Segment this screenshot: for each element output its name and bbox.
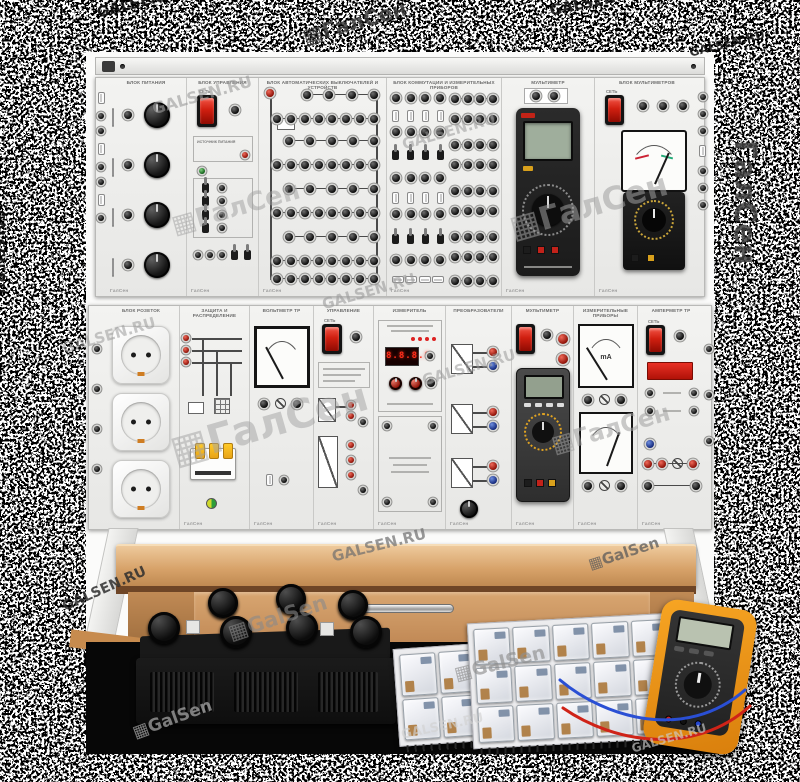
fuse-holder[interactable] (437, 110, 444, 122)
toggle-switch[interactable] (422, 234, 429, 244)
banana-jack[interactable] (94, 426, 100, 432)
banana-jack[interactable] (356, 161, 364, 169)
banana-jack[interactable] (706, 346, 712, 352)
banana-jack[interactable] (98, 215, 104, 221)
banana-jack[interactable] (700, 168, 706, 174)
power-rocker-switch[interactable] (646, 325, 665, 355)
led-red (425, 337, 429, 341)
banana-jack[interactable] (349, 185, 357, 193)
range-dial-ring (522, 184, 574, 236)
red-adjust-knob[interactable] (409, 377, 422, 390)
banana-jack-red[interactable] (489, 462, 497, 470)
banana-jack[interactable] (342, 209, 350, 217)
banana-jack[interactable] (476, 161, 484, 169)
banana-jack-red[interactable] (489, 408, 497, 416)
banana-jack[interactable] (451, 187, 459, 195)
grid-row (451, 186, 497, 195)
banana-jack[interactable] (301, 161, 309, 169)
banana-jack[interactable] (356, 275, 364, 283)
fuse-holder[interactable] (699, 145, 706, 157)
banana-jack[interactable] (98, 128, 104, 134)
banana-jack[interactable] (287, 209, 295, 217)
banana-jack[interactable] (356, 115, 364, 123)
banana-jack[interactable] (532, 92, 540, 100)
banana-jack[interactable] (392, 256, 400, 264)
banana-jack[interactable] (342, 115, 350, 123)
banana-jack[interactable] (639, 102, 647, 110)
block-header: БЛОК ПИТАНИЯ (108, 80, 184, 85)
button[interactable] (557, 403, 564, 407)
banana-jack[interactable] (349, 137, 357, 145)
banana-jack[interactable] (219, 252, 225, 258)
banana-jack[interactable] (370, 257, 378, 265)
banana-jack[interactable] (451, 95, 459, 103)
wall-socket[interactable] (112, 460, 170, 518)
banana-jack-red[interactable] (183, 359, 189, 365)
banana-jack[interactable] (360, 487, 366, 493)
banana-jack[interactable] (691, 408, 697, 414)
rotary-dial[interactable] (532, 194, 564, 226)
banana-jack[interactable] (328, 275, 336, 283)
fuse-holder[interactable] (422, 192, 429, 204)
fuse-holder[interactable] (437, 192, 444, 204)
banana-jack[interactable] (647, 390, 653, 396)
banana-jack[interactable] (464, 95, 472, 103)
banana-jack-red[interactable] (348, 402, 354, 408)
indicator-jack-green[interactable] (199, 168, 205, 174)
banana-jack[interactable] (584, 482, 592, 490)
toggle-switch[interactable] (407, 234, 414, 244)
banana-jack[interactable] (451, 207, 459, 215)
button[interactable] (524, 403, 531, 407)
banana-jack[interactable] (328, 233, 336, 241)
banana-jack[interactable] (124, 211, 132, 219)
ammeter-block: АМПЕРМЕТР ТР СЕТЬ (637, 306, 704, 529)
indicator-jack-red[interactable] (242, 152, 248, 158)
banana-jack[interactable] (489, 161, 497, 169)
banana-jack[interactable] (360, 419, 366, 425)
banana-jack[interactable] (407, 94, 415, 102)
scale-arc (584, 427, 628, 474)
banana-jack[interactable] (328, 257, 336, 265)
banana-jack-red[interactable] (348, 457, 354, 463)
toggle-switch[interactable] (437, 234, 444, 244)
banana-jack[interactable] (325, 91, 333, 99)
fuse-holder[interactable] (112, 158, 114, 177)
relay[interactable] (477, 705, 515, 743)
circuit-breaker[interactable] (190, 448, 236, 480)
label-line (323, 374, 361, 376)
fuse-holder[interactable] (98, 143, 105, 155)
banana-jack-red[interactable] (348, 442, 354, 448)
terminal-block (186, 620, 200, 634)
fuse-holder[interactable] (392, 110, 399, 122)
lcd-display (523, 121, 573, 161)
breaker-lever[interactable] (209, 443, 219, 459)
rheostat-knob[interactable] (148, 612, 180, 644)
button[interactable] (546, 403, 553, 407)
banana-jack[interactable] (644, 482, 652, 490)
input-jacks (631, 254, 655, 262)
banana-jack[interactable] (328, 137, 336, 145)
banana-jack-red[interactable] (183, 335, 189, 341)
banana-jack[interactable] (647, 408, 653, 414)
banana-jack[interactable] (370, 161, 378, 169)
toggle-switch[interactable] (407, 150, 414, 160)
vent-slots (150, 672, 214, 712)
banana-jack[interactable] (436, 210, 444, 218)
left-jack-strip (96, 92, 106, 221)
banana-jack[interactable] (464, 141, 472, 149)
fuse-holder[interactable] (407, 110, 414, 122)
banana-jack[interactable] (352, 333, 360, 341)
banana-jack[interactable] (421, 128, 429, 136)
fuse-holder[interactable] (405, 276, 417, 283)
banana-jack[interactable] (407, 210, 415, 218)
fuse-holder[interactable] (112, 108, 114, 127)
banana-jack[interactable] (489, 141, 497, 149)
banana-jack[interactable] (464, 253, 472, 261)
banana-jack[interactable] (692, 482, 700, 490)
banana-jack[interactable] (281, 477, 287, 483)
fuse-holder[interactable] (266, 474, 273, 486)
banana-jack[interactable] (451, 277, 459, 285)
banana-jack[interactable] (285, 185, 293, 193)
toggle-switch[interactable] (231, 250, 238, 260)
banana-jack[interactable] (349, 233, 357, 241)
meter-body (623, 192, 685, 270)
banana-jack[interactable] (584, 396, 592, 404)
banana-jack[interactable] (306, 233, 314, 241)
banana-jack[interactable] (659, 102, 667, 110)
label-box (318, 362, 370, 388)
banana-jack[interactable] (451, 253, 459, 261)
banana-jack[interactable] (679, 102, 687, 110)
voltage-adjust-knob[interactable] (144, 202, 170, 228)
banana-jack-red[interactable] (489, 348, 497, 356)
busbar-drop (202, 338, 204, 396)
banana-jack[interactable] (476, 95, 484, 103)
banana-jack[interactable] (489, 115, 497, 123)
banana-jack-red[interactable] (558, 354, 568, 364)
banana-jack[interactable] (476, 207, 484, 215)
banana-jack[interactable] (287, 115, 295, 123)
breaker-lever[interactable] (195, 443, 205, 459)
power-rocker-switch[interactable] (322, 324, 342, 354)
banana-jack[interactable] (700, 202, 706, 208)
banana-jack[interactable] (287, 161, 295, 169)
banana-jack[interactable] (315, 209, 323, 217)
fuse-holder[interactable] (392, 192, 399, 204)
socket-well (121, 469, 161, 509)
banana-jack[interactable] (392, 94, 400, 102)
banana-jack[interactable] (706, 438, 712, 444)
banana-jack[interactable] (550, 92, 558, 100)
banana-jack-blue[interactable] (489, 422, 497, 430)
banana-jack-red[interactable] (348, 472, 354, 478)
banana-jack[interactable] (287, 275, 295, 283)
banana-jack[interactable] (476, 253, 484, 261)
banana-jack[interactable] (436, 128, 444, 136)
banana-jack[interactable] (436, 174, 444, 182)
scale-arc (583, 339, 629, 388)
rheostat-knob[interactable] (350, 616, 382, 648)
fuse-holder[interactable] (392, 276, 404, 283)
banana-jack[interactable] (700, 185, 706, 191)
banana-jack[interactable] (98, 179, 104, 185)
banana-jack[interactable] (489, 277, 497, 285)
banana-jack[interactable] (370, 185, 378, 193)
banana-jack[interactable] (285, 137, 293, 145)
fuse-holder[interactable] (407, 192, 414, 204)
banana-jack-blue[interactable] (489, 362, 497, 370)
relay[interactable] (475, 666, 513, 704)
banana-jack[interactable] (219, 198, 225, 204)
rheostat-knob[interactable] (276, 584, 306, 614)
load-rheostat-box (134, 586, 402, 734)
power-rocker-switch[interactable] (197, 95, 217, 127)
input-jack-black[interactable] (524, 479, 532, 487)
banana-jack[interactable] (293, 400, 301, 408)
banana-jack[interactable] (273, 209, 281, 217)
banana-jack-red[interactable] (183, 347, 189, 353)
banana-jack[interactable] (451, 141, 459, 149)
banana-jack[interactable] (328, 209, 336, 217)
banana-jack[interactable] (273, 275, 281, 283)
banana-jack-blue[interactable] (489, 476, 497, 484)
fuse-holder[interactable] (432, 276, 444, 283)
right-jack-strip (699, 94, 706, 208)
banana-jack[interactable] (315, 161, 323, 169)
banana-jack[interactable] (451, 161, 459, 169)
input-jack-red[interactable] (536, 479, 544, 487)
banana-jack[interactable] (273, 257, 281, 265)
toggle-switch[interactable] (437, 150, 444, 160)
banana-jack[interactable] (328, 185, 336, 193)
banana-jack[interactable] (124, 261, 132, 269)
banana-jack[interactable] (700, 111, 706, 117)
power-rocker-switch[interactable] (605, 95, 624, 125)
banana-jack[interactable] (617, 396, 625, 404)
banana-jack[interactable] (392, 210, 400, 218)
banana-jack[interactable] (328, 161, 336, 169)
toggle-switch[interactable] (202, 223, 209, 233)
banana-jack[interactable] (464, 161, 472, 169)
range-selector-dial[interactable] (642, 208, 666, 232)
toggle-switch[interactable] (392, 150, 399, 160)
banana-jack[interactable] (315, 257, 323, 265)
wall-socket[interactable] (112, 326, 170, 384)
banana-jack[interactable] (430, 423, 436, 429)
banana-jack[interactable] (421, 94, 429, 102)
relay[interactable] (473, 627, 511, 665)
banana-jack[interactable] (451, 233, 459, 241)
input-jack-black[interactable] (631, 254, 639, 262)
fuse-holder[interactable] (112, 208, 114, 227)
banana-jack-red[interactable] (689, 460, 697, 468)
input-jack-red[interactable] (537, 246, 545, 254)
banana-jack-red[interactable] (558, 334, 568, 344)
banana-jack[interactable] (219, 225, 225, 231)
banana-jack[interactable] (700, 128, 706, 134)
rotary-dial[interactable] (532, 421, 554, 443)
red-adjust-knob[interactable] (389, 377, 402, 390)
banana-jack[interactable] (392, 174, 400, 182)
banana-jack[interactable] (421, 174, 429, 182)
block-header: ЗАЩИТА И РАСПРЕДЕЛЕНИЕ (182, 308, 247, 319)
banana-jack[interactable] (98, 164, 104, 170)
banana-jack[interactable] (207, 252, 213, 258)
banana-jack[interactable] (476, 277, 484, 285)
banana-jack[interactable] (464, 277, 472, 285)
rheostat-knob[interactable] (208, 588, 238, 618)
banana-jack[interactable] (98, 113, 104, 119)
input-jack-black[interactable] (523, 246, 531, 254)
banana-jack[interactable] (407, 174, 415, 182)
banana-jack[interactable] (273, 161, 281, 169)
relay[interactable] (402, 697, 440, 741)
banana-jack[interactable] (464, 233, 472, 241)
banana-jack[interactable] (421, 256, 429, 264)
banana-jack[interactable] (303, 91, 311, 99)
banana-jack[interactable] (706, 392, 712, 398)
voltage-adjust-knob[interactable] (144, 252, 170, 278)
handheld-multimeter (516, 368, 570, 502)
banana-jack[interactable] (691, 390, 697, 396)
banana-jack[interactable] (273, 115, 281, 123)
banana-jack[interactable] (476, 141, 484, 149)
test-leads (545, 648, 760, 758)
banana-jack[interactable] (370, 91, 378, 99)
banana-jack[interactable] (124, 111, 132, 119)
banana-jack[interactable] (306, 137, 314, 145)
banana-jack[interactable] (476, 233, 484, 241)
banana-jack[interactable] (384, 499, 390, 505)
banana-jack[interactable] (356, 209, 364, 217)
banana-jack[interactable] (94, 386, 100, 392)
breaker-lever[interactable] (223, 443, 233, 459)
banana-jack[interactable] (306, 185, 314, 193)
banana-jack[interactable] (219, 185, 225, 191)
banana-jack[interactable] (676, 332, 684, 340)
banana-jack[interactable] (436, 256, 444, 264)
banana-jack[interactable] (370, 115, 378, 123)
banana-jack[interactable] (301, 275, 309, 283)
toggle-switch[interactable] (422, 150, 429, 160)
banana-jack[interactable] (219, 212, 225, 218)
fuse-holder[interactable] (422, 110, 429, 122)
banana-jack[interactable] (342, 275, 350, 283)
banana-jack[interactable] (489, 187, 497, 195)
banana-jack[interactable] (370, 275, 378, 283)
banana-jack[interactable] (489, 95, 497, 103)
function-button[interactable] (523, 166, 533, 171)
adjust-knob[interactable] (460, 500, 478, 518)
banana-jack[interactable] (287, 257, 295, 265)
banana-jack[interactable] (356, 257, 364, 265)
rheostat-knob[interactable] (286, 612, 318, 644)
voltage-adjust-knob[interactable] (144, 102, 170, 128)
wall-socket[interactable] (112, 393, 170, 451)
banana-jack[interactable] (476, 115, 484, 123)
banana-jack[interactable] (421, 210, 429, 218)
fuse-holder[interactable] (419, 276, 431, 283)
banana-jack[interactable] (617, 482, 625, 490)
seven-segment-display: 8.8.8.8 (385, 347, 419, 366)
banana-jack[interactable] (342, 161, 350, 169)
banana-jack[interactable] (370, 233, 378, 241)
banana-jack-blue[interactable] (646, 440, 654, 448)
banana-jack[interactable] (342, 257, 350, 265)
fuse-holder[interactable] (98, 92, 105, 104)
toggle-switch[interactable] (392, 234, 399, 244)
banana-jack[interactable] (451, 115, 459, 123)
voltmeter-face (254, 326, 310, 388)
banana-jack[interactable] (392, 128, 400, 136)
banana-jack[interactable] (94, 346, 100, 352)
banana-jack[interactable] (476, 187, 484, 195)
fuse-holder[interactable] (112, 258, 114, 277)
banana-jack[interactable] (384, 423, 390, 429)
banana-jack-red[interactable] (348, 413, 354, 419)
banana-jack[interactable] (407, 128, 415, 136)
rheostat-knob[interactable] (220, 616, 252, 648)
banana-jack[interactable] (464, 115, 472, 123)
voltage-adjust-knob[interactable] (144, 152, 170, 178)
banana-jack[interactable] (301, 115, 309, 123)
banana-jack[interactable] (464, 187, 472, 195)
banana-jack[interactable] (231, 106, 239, 114)
banana-jack[interactable] (407, 256, 415, 264)
banana-jack[interactable] (301, 257, 309, 265)
banana-jack[interactable] (315, 115, 323, 123)
banana-jack[interactable] (430, 499, 436, 505)
banana-jack[interactable] (436, 94, 444, 102)
banana-jack[interactable] (700, 94, 706, 100)
banana-jack[interactable] (427, 379, 435, 387)
banana-jack[interactable] (370, 209, 378, 217)
banana-jack[interactable] (543, 331, 551, 339)
banana-jack-red[interactable] (658, 460, 666, 468)
banana-jack-red[interactable] (266, 89, 274, 97)
banana-jack[interactable] (427, 353, 433, 359)
banana-jack[interactable] (285, 233, 293, 241)
banana-jack[interactable] (328, 115, 336, 123)
input-jack-red[interactable] (551, 246, 559, 254)
meter-unit-label: mA (600, 354, 611, 361)
toggle-switch[interactable] (244, 250, 251, 260)
banana-jack[interactable] (301, 209, 309, 217)
banana-jack[interactable] (370, 137, 378, 145)
input-jack-yellow[interactable] (548, 479, 556, 487)
banana-jack[interactable] (489, 233, 497, 241)
relay[interactable] (399, 652, 437, 696)
fuse-holder[interactable] (98, 194, 105, 206)
button[interactable] (535, 403, 542, 407)
banana-jack[interactable] (195, 252, 201, 258)
banana-jack[interactable] (348, 91, 356, 99)
banana-jack[interactable] (489, 207, 497, 215)
banana-jack-red[interactable] (644, 460, 652, 468)
banana-jack[interactable] (260, 400, 268, 408)
banana-jack[interactable] (124, 161, 132, 169)
banana-jack[interactable] (489, 253, 497, 261)
power-rocker-switch[interactable] (516, 324, 535, 354)
banana-jack[interactable] (464, 207, 472, 215)
banana-jack[interactable] (315, 275, 323, 283)
input-jack-yellow[interactable] (647, 254, 655, 262)
banana-jack[interactable] (94, 466, 100, 472)
